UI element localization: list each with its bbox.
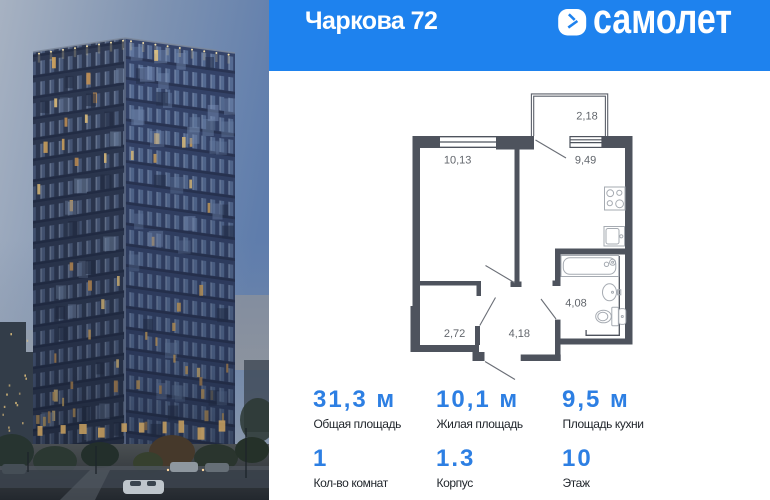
svg-text:2,18: 2,18 [576, 111, 597, 123]
svg-text:9,49: 9,49 [575, 155, 596, 167]
svg-text:10,13: 10,13 [444, 155, 472, 167]
svg-text:4,18: 4,18 [509, 328, 530, 340]
svg-text:самолет: самолет [593, 6, 732, 40]
svg-text:2,72: 2,72 [444, 328, 465, 340]
svg-text:4,08: 4,08 [565, 298, 586, 310]
